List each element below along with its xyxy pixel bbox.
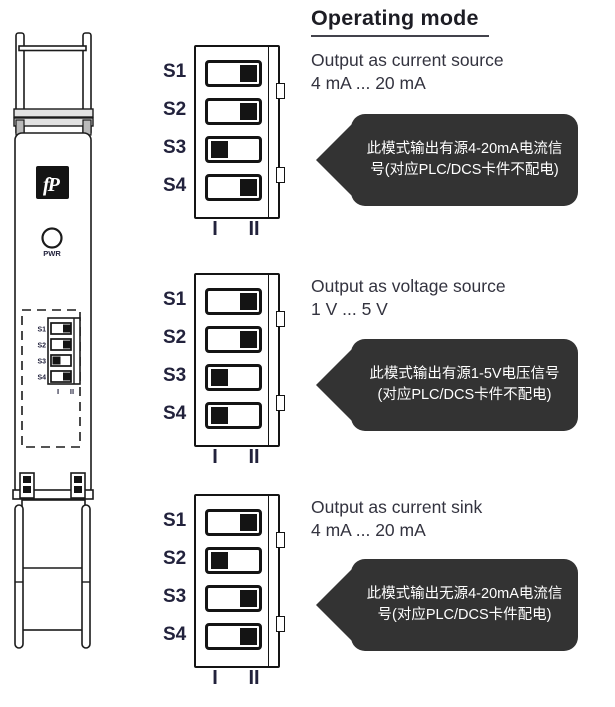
mode-name: Output as voltage source [311, 275, 506, 298]
switch-label-s3: S3 [163, 137, 193, 161]
switch-knob [211, 141, 228, 158]
housing-tab [276, 616, 285, 632]
dip-switch-s2 [205, 98, 262, 125]
housing-tab [276, 167, 285, 183]
scale-label-ii: II [241, 667, 267, 691]
callout-1: 此模式输出有源4-20mA电流信号(对应PLC/DCS卡件不配电) [316, 114, 578, 206]
dip-switch-s4 [205, 174, 262, 201]
mode-name: Output as current sink [311, 496, 482, 519]
switch-label-s4: S4 [163, 403, 193, 427]
handle-crossbar [19, 46, 86, 51]
callout-text: 此模式输出有源1-5V电压信号(对应PLC/DCS卡件不配电) [351, 358, 578, 411]
scale-label-i: I [205, 446, 225, 470]
switch-knob [211, 407, 228, 424]
device-mini-switch-s2 [51, 339, 71, 350]
housing-tab [276, 395, 285, 411]
dip-switch-s1 [205, 60, 262, 87]
callout-text: 此模式输出无源4-20mA电流信号(对应PLC/DCS卡件配电) [351, 578, 578, 631]
switch-knob [240, 65, 257, 82]
dip-switch-s3 [205, 585, 262, 612]
callout-bubble: 此模式输出有源1-5V电压信号(对应PLC/DCS卡件不配电) [351, 339, 578, 431]
switch-label-s2: S2 [163, 99, 193, 123]
dip-switch-s1 [205, 288, 262, 315]
switch-label-s4: S4 [163, 624, 193, 648]
mode-description-1: Output as current source 4 mA ... 20 mA [311, 49, 504, 94]
dip-switch-s2 [205, 326, 262, 353]
mode-description-2: Output as voltage source 1 V ... 5 V [311, 275, 506, 320]
mode-range: 4 mA ... 20 mA [311, 519, 482, 542]
handle-bar-lower [14, 118, 93, 126]
handle-bar-upper [14, 109, 93, 117]
callout-text: 此模式输出有源4-20mA电流信号(对应PLC/DCS卡件不配电) [351, 133, 578, 186]
dip-switch-s4 [205, 402, 262, 429]
mode-name: Output as current source [311, 49, 504, 72]
mini-switch-label: S2 [37, 343, 46, 350]
switch-label-s3: S3 [163, 365, 193, 389]
dip-switch-s4 [205, 623, 262, 650]
switch-knob [240, 331, 257, 348]
mode-range: 1 V ... 5 V [311, 298, 506, 321]
manual-page: fP PWR S1 S2 S3 S4 [0, 0, 615, 707]
terminal-clamp-left [20, 473, 34, 498]
device-mini-switch-s3 [51, 355, 71, 366]
terminal-leg-right [82, 505, 90, 648]
callout-arrow [316, 348, 353, 422]
switch-knob [240, 103, 257, 120]
switch-label-s1: S1 [163, 289, 193, 313]
switch-knob [240, 628, 257, 645]
callout-2: 此模式输出有源1-5V电压信号(对应PLC/DCS卡件不配电) [316, 339, 578, 431]
switch-knob [240, 514, 257, 531]
switch-label-s2: S2 [163, 327, 193, 351]
device-illustration: fP PWR S1 S2 S3 S4 [5, 25, 110, 655]
switch-label-s4: S4 [163, 175, 193, 199]
scale-label-i: I [205, 218, 225, 242]
switch-knob [240, 179, 257, 196]
scale-label-i: I [205, 667, 225, 691]
switch-label-s1: S1 [163, 61, 193, 85]
housing-tab [276, 532, 285, 548]
scale-label-ii: II [241, 446, 267, 470]
pf-logo: fP [36, 166, 69, 199]
callout-3: 此模式输出无源4-20mA电流信号(对应PLC/DCS卡件配电) [316, 559, 578, 651]
dip-switch-s3 [205, 364, 262, 391]
callout-bubble: 此模式输出有源4-20mA电流信号(对应PLC/DCS卡件不配电) [351, 114, 578, 206]
callout-arrow [316, 123, 353, 197]
switch-knob [211, 552, 228, 569]
housing-tab [276, 83, 285, 99]
dip-diagram-mode-1: S1 S2 S3 S4 I II [163, 45, 315, 243]
pwr-led [43, 229, 62, 248]
mini-scale-ii: II [70, 387, 74, 396]
switch-knob [211, 369, 228, 386]
switch-knob [240, 293, 257, 310]
terminal-block [22, 500, 85, 630]
dip-switch-s2 [205, 547, 262, 574]
terminal-leg-left [15, 505, 23, 648]
switch-knob [240, 590, 257, 607]
switch-label-s3: S3 [163, 586, 193, 610]
mini-switch-label: S1 [37, 327, 46, 334]
scale-label-ii: II [241, 218, 267, 242]
mini-switch-label: S4 [37, 375, 46, 382]
page-title: Operating mode [311, 6, 489, 37]
device-mini-switch-s4 [51, 371, 71, 382]
terminal-clamp-right [71, 473, 85, 498]
device-mini-switch-s1 [51, 323, 71, 334]
pwr-label: PWR [43, 249, 61, 258]
mode-description-3: Output as current sink 4 mA ... 20 mA [311, 496, 482, 541]
callout-arrow [316, 568, 353, 642]
switch-label-s1: S1 [163, 510, 193, 534]
dip-switch-s3 [205, 136, 262, 163]
dip-switch-s1 [205, 509, 262, 536]
mini-scale-i: I [57, 387, 59, 396]
dip-diagram-mode-2: S1 S2 S3 S4 I II [163, 273, 315, 471]
callout-bubble: 此模式输出无源4-20mA电流信号(对应PLC/DCS卡件配电) [351, 559, 578, 651]
switch-label-s2: S2 [163, 548, 193, 572]
mode-range: 4 mA ... 20 mA [311, 72, 504, 95]
dip-diagram-mode-3: S1 S2 S3 S4 I II [163, 494, 315, 692]
housing-tab [276, 311, 285, 327]
mini-switch-label: S3 [37, 359, 46, 366]
